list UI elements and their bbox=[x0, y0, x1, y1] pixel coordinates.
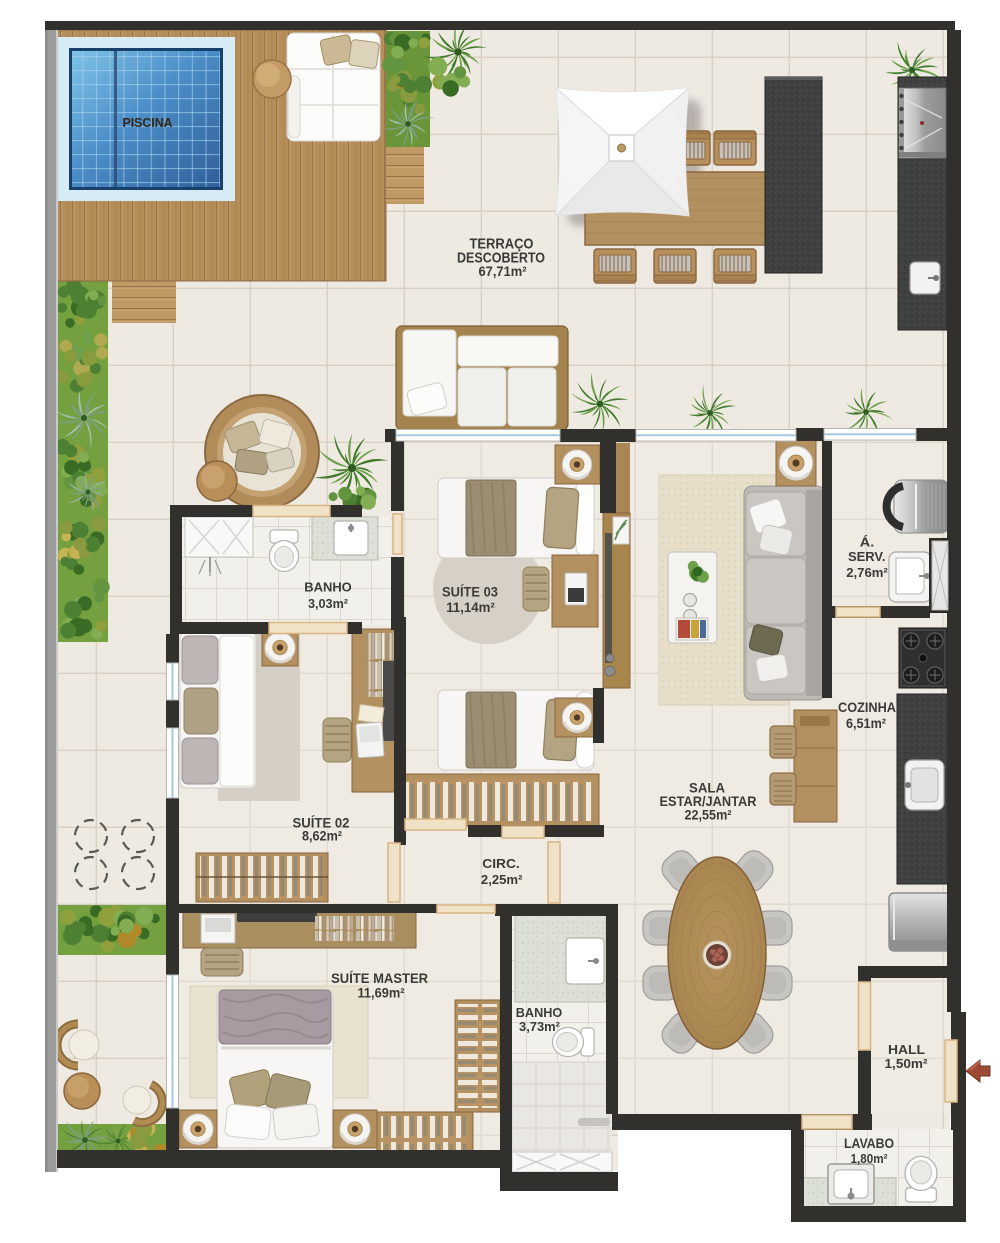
svg-text:HALL: HALL bbox=[888, 1042, 925, 1057]
svg-text:11,14m²: 11,14m² bbox=[446, 599, 495, 615]
svg-text:PISCINA: PISCINA bbox=[123, 115, 174, 130]
svg-text:8,62m²: 8,62m² bbox=[302, 829, 342, 844]
svg-text:BANHO: BANHO bbox=[304, 580, 352, 595]
svg-text:CIRC.: CIRC. bbox=[482, 856, 520, 871]
svg-text:6,51m²: 6,51m² bbox=[846, 715, 886, 731]
svg-text:SUÍTE MASTER: SUÍTE MASTER bbox=[331, 970, 428, 986]
svg-text:1,80m²: 1,80m² bbox=[851, 1151, 889, 1166]
svg-text:3,03m²: 3,03m² bbox=[308, 596, 349, 611]
svg-text:2,25m²: 2,25m² bbox=[481, 872, 523, 887]
svg-text:1,50m²: 1,50m² bbox=[885, 1056, 929, 1071]
svg-text:COZINHA: COZINHA bbox=[838, 699, 896, 715]
svg-text:BANHO: BANHO bbox=[516, 1005, 563, 1020]
svg-text:67,71m²: 67,71m² bbox=[479, 263, 527, 279]
svg-text:SUÍTE 03: SUÍTE 03 bbox=[442, 584, 498, 600]
svg-text:11,69m²: 11,69m² bbox=[358, 986, 405, 1001]
svg-text:22,55m²: 22,55m² bbox=[685, 808, 732, 823]
svg-text:2,76m²: 2,76m² bbox=[846, 565, 888, 580]
svg-text:ESTAR/JANTAR: ESTAR/JANTAR bbox=[660, 793, 757, 809]
svg-text:LAVABO: LAVABO bbox=[844, 1136, 894, 1151]
svg-text:3,73m²: 3,73m² bbox=[519, 1019, 561, 1034]
svg-text:Á.: Á. bbox=[860, 535, 875, 550]
svg-text:SERV.: SERV. bbox=[848, 549, 886, 564]
